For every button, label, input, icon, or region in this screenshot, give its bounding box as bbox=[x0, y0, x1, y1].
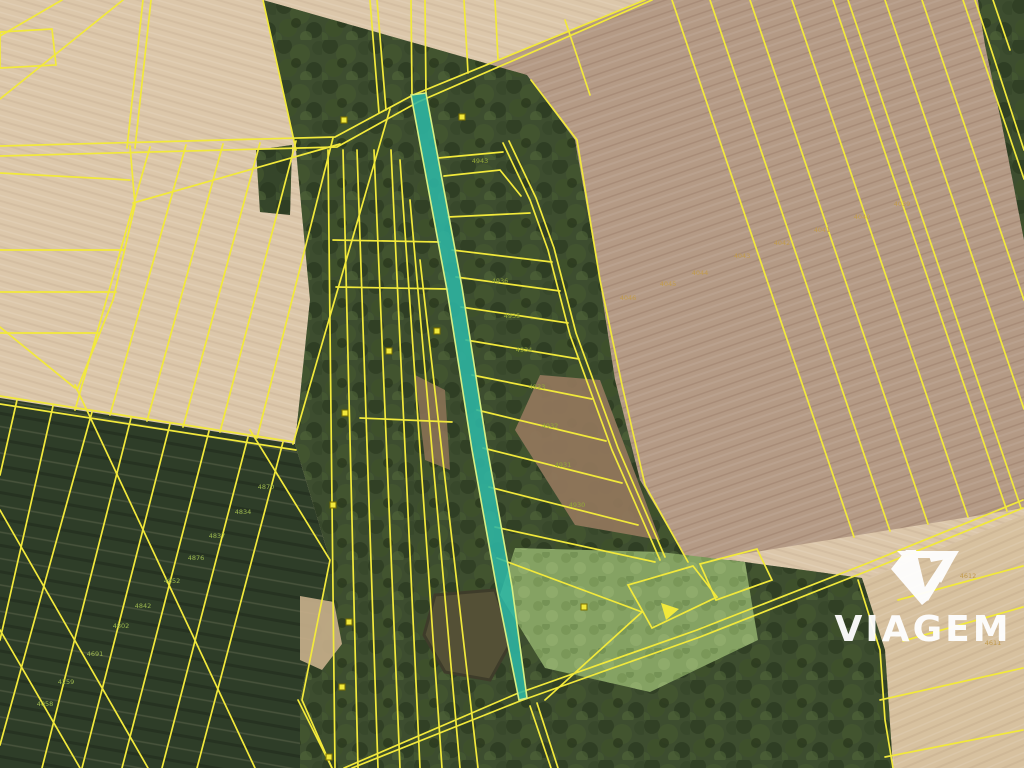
building-marker-icon bbox=[342, 410, 348, 416]
parcel-number-label: 4044 bbox=[692, 269, 709, 277]
building-marker-icon bbox=[581, 604, 587, 610]
parcel-number-label: 4040 bbox=[854, 213, 871, 221]
parcel-number-label: 4842 bbox=[135, 602, 152, 610]
parcel-number-label: 4259 bbox=[58, 678, 75, 686]
viagem-logo-text: VIAGEM bbox=[834, 609, 1011, 650]
parcel-number-label: 4934 bbox=[516, 346, 533, 354]
building-marker-icon bbox=[339, 684, 345, 690]
parcel-number-label: 4691 bbox=[87, 650, 104, 658]
parcel-number-label: 4046 bbox=[620, 294, 637, 302]
parcel-number-label: 4932 bbox=[542, 422, 559, 430]
building-marker-icon bbox=[434, 328, 440, 334]
map-export: 4870483448374876485248424802469142594058… bbox=[0, 0, 1024, 768]
building-marker-icon bbox=[386, 348, 392, 354]
parcel-number-label: 4931 bbox=[555, 461, 572, 469]
parcel-number-label: 4935 bbox=[504, 312, 521, 320]
building-marker-icon bbox=[459, 114, 465, 120]
parcel-number-label: 4930 bbox=[569, 501, 586, 509]
parcel-number-label: 4612 bbox=[960, 572, 977, 580]
building-marker-icon bbox=[341, 117, 347, 123]
map-canvas[interactable]: 4870483448374876485248424802469142594058… bbox=[0, 0, 1024, 768]
parcel-number-label: 4876 bbox=[188, 554, 205, 562]
parcel-number-label: 4041 bbox=[814, 226, 831, 234]
building-marker-icon bbox=[326, 754, 332, 760]
building-marker-icon bbox=[346, 619, 352, 625]
parcel-number-label: 4043 bbox=[734, 252, 751, 260]
parcel-number-label: 4936 bbox=[492, 277, 509, 285]
parcel-number-label: 4870 bbox=[258, 483, 275, 491]
parcel-number-label: 4042 bbox=[774, 239, 791, 247]
parcel-number-label: 4045 bbox=[660, 280, 677, 288]
parcel-number-label: 4933 bbox=[529, 383, 546, 391]
parcel-number-label: 4802 bbox=[113, 622, 130, 630]
parcel-number-label: 4943 bbox=[472, 157, 489, 165]
parcel-number-label: 4058 bbox=[37, 700, 54, 708]
parcel-number-label: 4039 bbox=[894, 200, 911, 208]
building-marker-icon bbox=[330, 502, 336, 508]
parcel-number-label: 4837 bbox=[209, 532, 226, 540]
parcel-number-label: 4852 bbox=[164, 577, 181, 585]
parcel-number-label: 4834 bbox=[235, 508, 252, 516]
